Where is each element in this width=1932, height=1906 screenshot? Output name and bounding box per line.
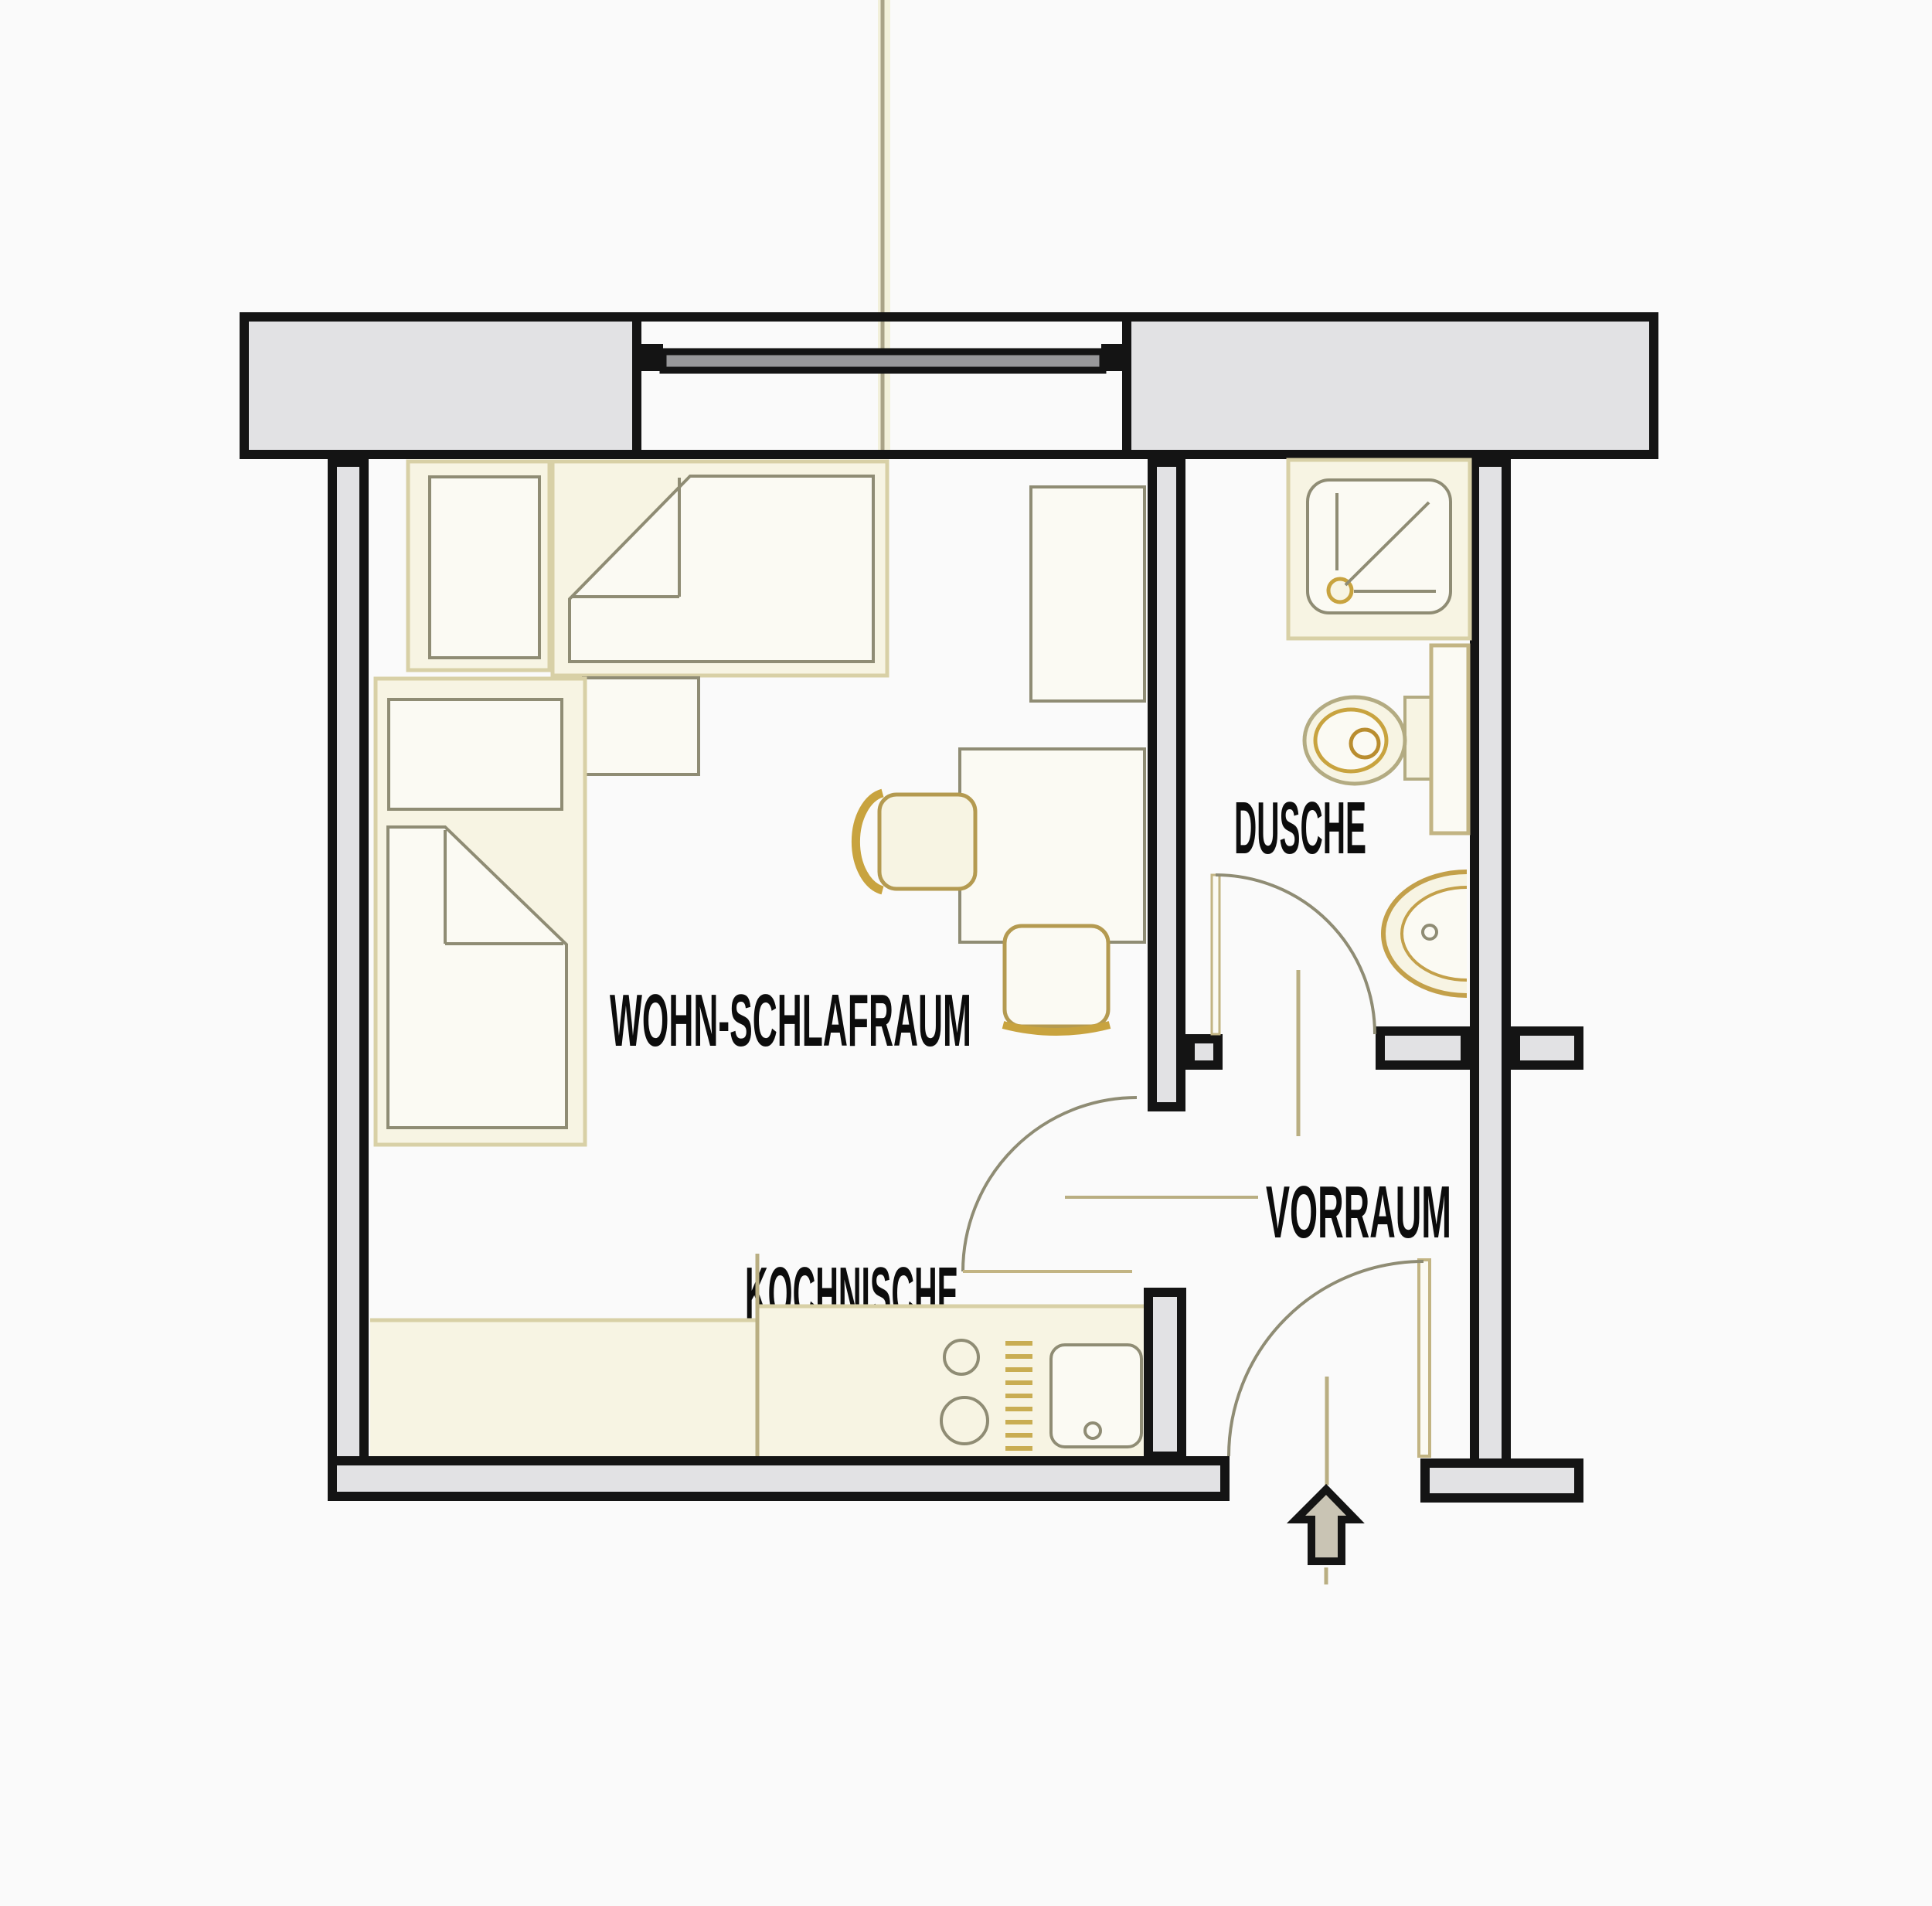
svg-text:DUSCHE: DUSCHE: [1234, 787, 1366, 870]
svg-text:VORRAUM: VORRAUM: [1266, 1171, 1451, 1254]
svg-text:WOHN-SCHLAFRAUM: WOHN-SCHLAFRAUM: [610, 979, 971, 1062]
